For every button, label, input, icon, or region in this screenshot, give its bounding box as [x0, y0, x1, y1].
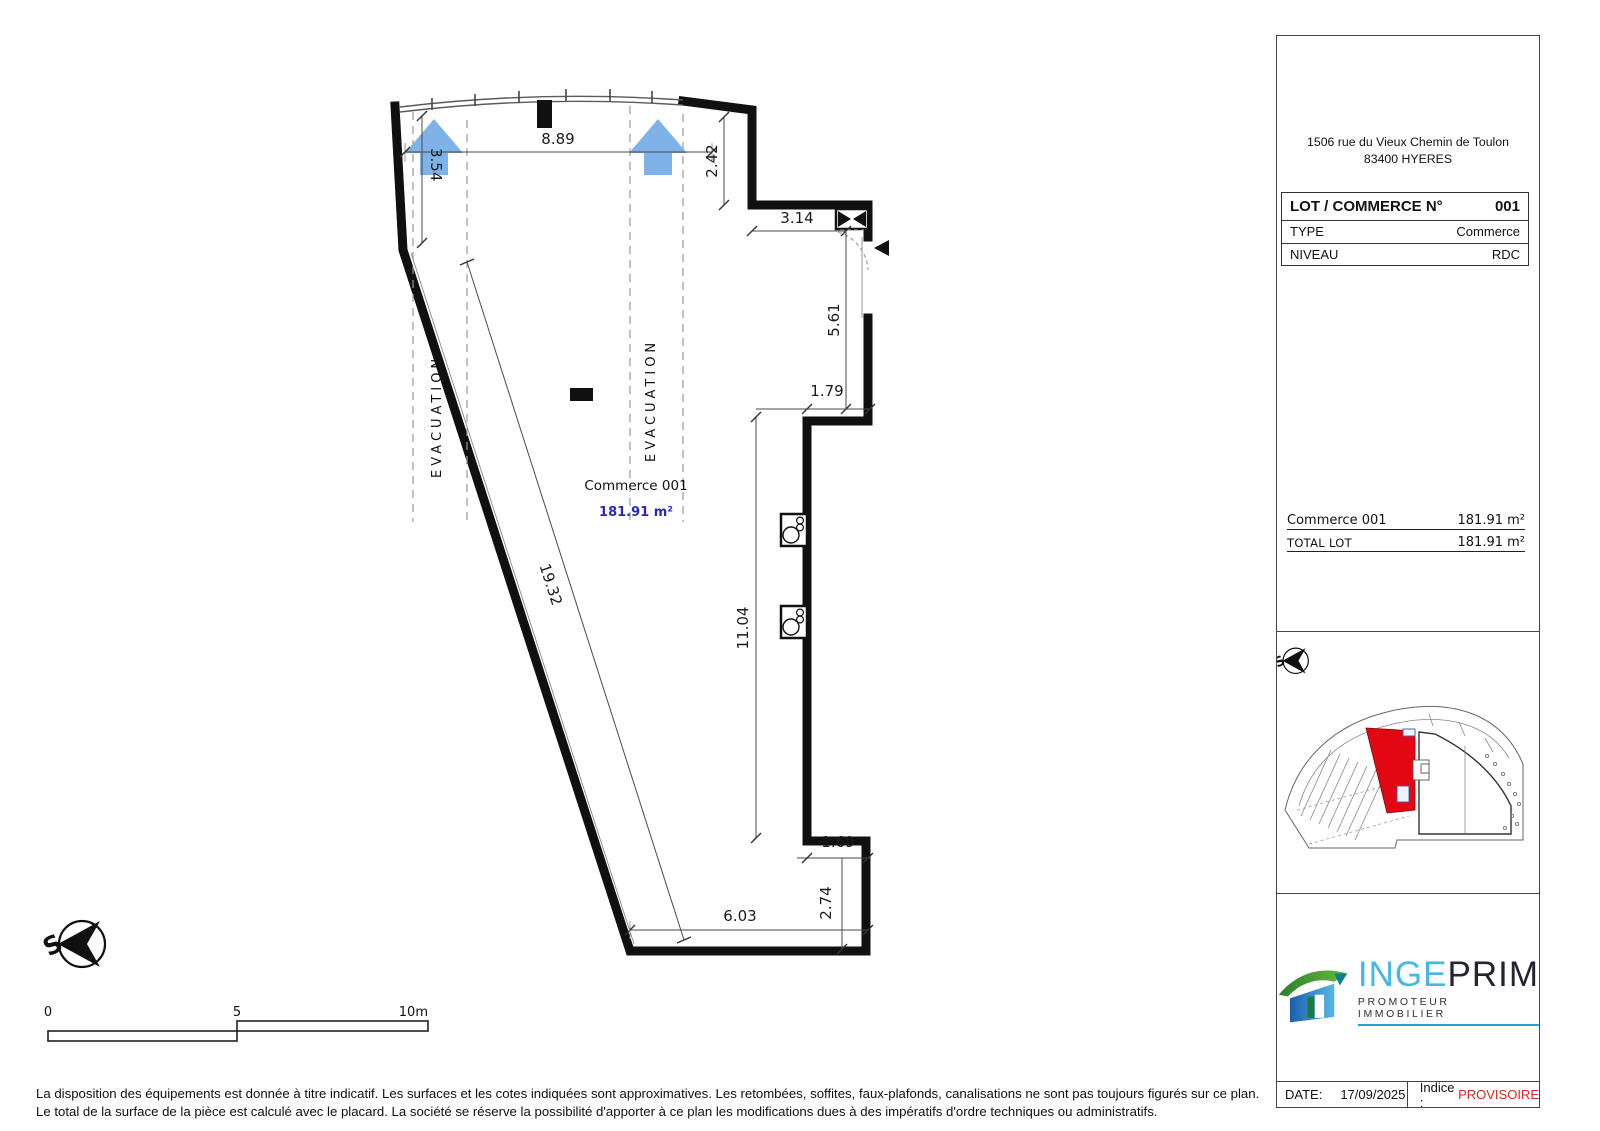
logo-text: INGEPRIM PROMOTEUR IMMOBILIER: [1358, 957, 1539, 1026]
lot-title: LOT / COMMERCE N°: [1290, 198, 1443, 215]
lot-number: 001: [1495, 198, 1520, 215]
company-logo: INGEPRIM PROMOTEUR IMMOBILIER: [1277, 898, 1539, 1084]
scale-start: 0: [44, 1005, 52, 1020]
disclaimer-line-1: La disposition des équipements est donné…: [36, 1085, 1259, 1103]
surface-table: Commerce 001 181.91 m² TOTAL LOT 181.91 …: [1287, 508, 1525, 552]
lot-type-row: TYPE Commerce: [1282, 220, 1528, 243]
level-value: RDC: [1492, 247, 1520, 262]
lot-table-header: LOT / COMMERCE N° 001: [1282, 193, 1528, 220]
dim-right-inner: 11.04: [734, 607, 752, 650]
dim-shopfront-left: 3.54: [427, 148, 445, 181]
disclaimer-line-2: Le total de la surface de la pièce est c…: [36, 1103, 1259, 1121]
entrance-door: [836, 209, 889, 318]
address-line-1: 1506 rue du Vieux Chemin de Toulon: [1277, 134, 1539, 151]
lot-table: LOT / COMMERCE N° 001 TYPE Commerce NIVE…: [1281, 192, 1529, 266]
evacuation-label: EVACUATION: [430, 355, 445, 478]
evacuation-label: EVACUATION: [644, 339, 659, 462]
title-block-footer: DATE: 17/09/2025 Indice : PROVISOIRE: [1277, 1081, 1539, 1107]
surface-label: Commerce 001: [1287, 513, 1387, 528]
indice-cell: Indice : PROVISOIRE: [1408, 1082, 1539, 1107]
surface-value: 181.91 m²: [1458, 513, 1526, 528]
title-block-panel: 1506 rue du Vieux Chemin de Toulon 83400…: [1276, 35, 1540, 1108]
dim-shopfront-width: 8.89: [541, 130, 574, 148]
dim-corridor-top: 3.14: [780, 209, 813, 227]
room-name: Commerce 001: [584, 478, 687, 494]
entry-arrow-icon: [874, 240, 889, 256]
floor-plan-page: { "plan": { "room": { "label": "Commerce…: [0, 0, 1600, 1131]
disclaimer: La disposition des équipements est donné…: [36, 1085, 1259, 1120]
wall-fixture-2: [781, 606, 807, 638]
evacuation-arrow-icon: [629, 119, 687, 175]
date-label: DATE:: [1285, 1087, 1322, 1102]
location-map: [1277, 636, 1539, 888]
type-label: TYPE: [1290, 224, 1324, 239]
logo-name-dark: PRIM: [1448, 955, 1540, 994]
lot-level-row: NIVEAU RDC: [1282, 243, 1528, 266]
dim-bottom-width: 6.03: [723, 907, 756, 925]
address-line-2: 83400 HYERES: [1277, 151, 1539, 168]
type-value: Commerce: [1456, 224, 1520, 239]
scale-end: 10m: [399, 1005, 428, 1020]
site-plan-thumbnail: [1285, 706, 1523, 848]
location-map-section: [1277, 636, 1539, 888]
logo-tagline: PROMOTEUR IMMOBILIER: [1358, 996, 1539, 1026]
dim-recess-bottom: 1.69: [821, 833, 854, 851]
surface-total-label: TOTAL LOT: [1287, 536, 1352, 550]
dim-right-top: 2.42: [703, 144, 721, 177]
compass-icon: [38, 921, 105, 967]
logo-name: INGEPRIM: [1358, 957, 1539, 993]
dim-right-upper: 5.61: [825, 303, 843, 336]
indice-value: PROVISOIRE: [1458, 1087, 1539, 1102]
evacuation-paths: EVACUATION EVACUATION: [405, 106, 687, 522]
logo-name-light: INGE: [1358, 955, 1448, 994]
surface-row: Commerce 001 181.91 m²: [1287, 508, 1525, 530]
date-cell: DATE: 17/09/2025: [1277, 1082, 1408, 1107]
project-address: 1506 rue du Vieux Chemin de Toulon 83400…: [1277, 134, 1539, 167]
dim-recess-top: 1.79: [810, 382, 843, 400]
indice-label: Indice :: [1420, 1080, 1455, 1110]
section-divider: [1276, 893, 1540, 894]
scale-bar: 0 5 10m: [44, 1005, 428, 1041]
column: [570, 388, 593, 401]
storefront-glazing: [400, 89, 683, 128]
compass-icon: [1277, 648, 1308, 673]
surface-total-value: 181.91 m²: [1458, 535, 1526, 550]
level-label: NIVEAU: [1290, 247, 1338, 262]
scale-middle: 5: [233, 1005, 241, 1020]
surface-total-row: TOTAL LOT 181.91 m²: [1287, 530, 1525, 552]
dim-diagonal-wall: 19.32: [536, 561, 566, 607]
facade-post: [537, 100, 552, 128]
date-value: 17/09/2025: [1340, 1087, 1405, 1102]
ingeprim-house-icon: [1277, 959, 1351, 1023]
dim-bottom-right: 2.74: [817, 886, 835, 919]
section-divider: [1276, 631, 1540, 632]
room-area: 181.91 m²: [599, 505, 673, 520]
wall-fixture-1: [781, 514, 807, 546]
